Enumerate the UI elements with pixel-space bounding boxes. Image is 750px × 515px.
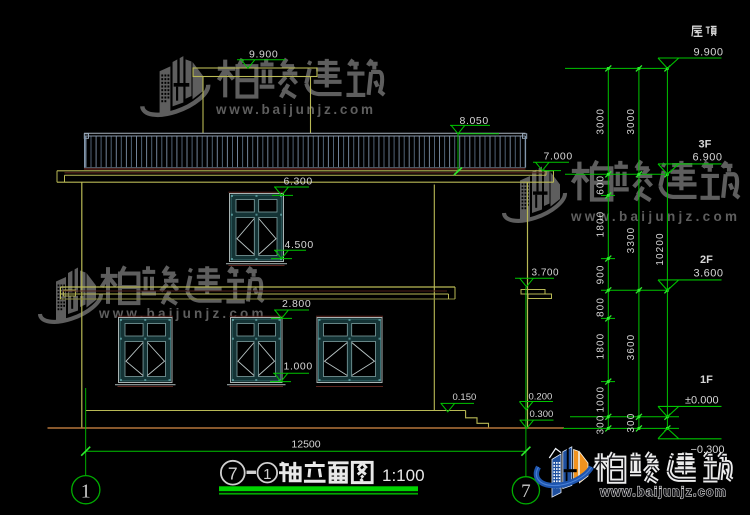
- svg-text:10200: 10200: [655, 232, 666, 265]
- svg-text:3F: 3F: [699, 139, 712, 151]
- svg-text:1F: 1F: [700, 374, 713, 386]
- svg-text:1800: 1800: [596, 333, 607, 360]
- svg-text:2.800: 2.800: [282, 298, 311, 310]
- svg-text:600: 600: [596, 175, 607, 195]
- svg-text:1800: 1800: [596, 211, 607, 238]
- svg-text:1: 1: [263, 466, 271, 483]
- svg-text:9.900: 9.900: [694, 47, 724, 59]
- svg-text:0.150: 0.150: [453, 392, 477, 403]
- svg-text:1000: 1000: [596, 386, 607, 413]
- svg-text:7.000: 7.000: [544, 151, 573, 163]
- svg-text:1: 1: [81, 481, 91, 503]
- svg-text:3.600: 3.600: [694, 268, 724, 280]
- svg-text:300: 300: [626, 413, 637, 433]
- svg-text:8.050: 8.050: [460, 115, 489, 127]
- svg-text:3.700: 3.700: [532, 268, 560, 279]
- svg-text:1:100: 1:100: [382, 466, 425, 485]
- svg-text:2F: 2F: [700, 254, 713, 266]
- svg-text:3600: 3600: [626, 334, 637, 361]
- svg-text:www.baijunjz.com: www.baijunjz.com: [215, 102, 376, 117]
- svg-text:6.300: 6.300: [284, 176, 313, 188]
- svg-text:4.500: 4.500: [285, 239, 314, 251]
- svg-text:3000: 3000: [626, 108, 637, 135]
- svg-text:300: 300: [596, 415, 607, 435]
- svg-text:0.300: 0.300: [530, 409, 554, 420]
- svg-text:9.900: 9.900: [249, 49, 278, 61]
- svg-text:7: 7: [228, 464, 238, 484]
- svg-text:12500: 12500: [291, 439, 320, 451]
- svg-text:±0.000: ±0.000: [685, 395, 719, 407]
- svg-text:7: 7: [521, 481, 531, 502]
- svg-text:900: 900: [596, 264, 607, 284]
- svg-text:6.900: 6.900: [693, 152, 723, 164]
- svg-text:0.200: 0.200: [529, 392, 553, 403]
- svg-text:3300: 3300: [626, 227, 637, 254]
- svg-text:1.000: 1.000: [284, 361, 313, 373]
- svg-text:800: 800: [596, 297, 607, 317]
- svg-text:www.baijunjz.com: www.baijunjz.com: [599, 485, 727, 499]
- svg-text:3000: 3000: [596, 108, 607, 135]
